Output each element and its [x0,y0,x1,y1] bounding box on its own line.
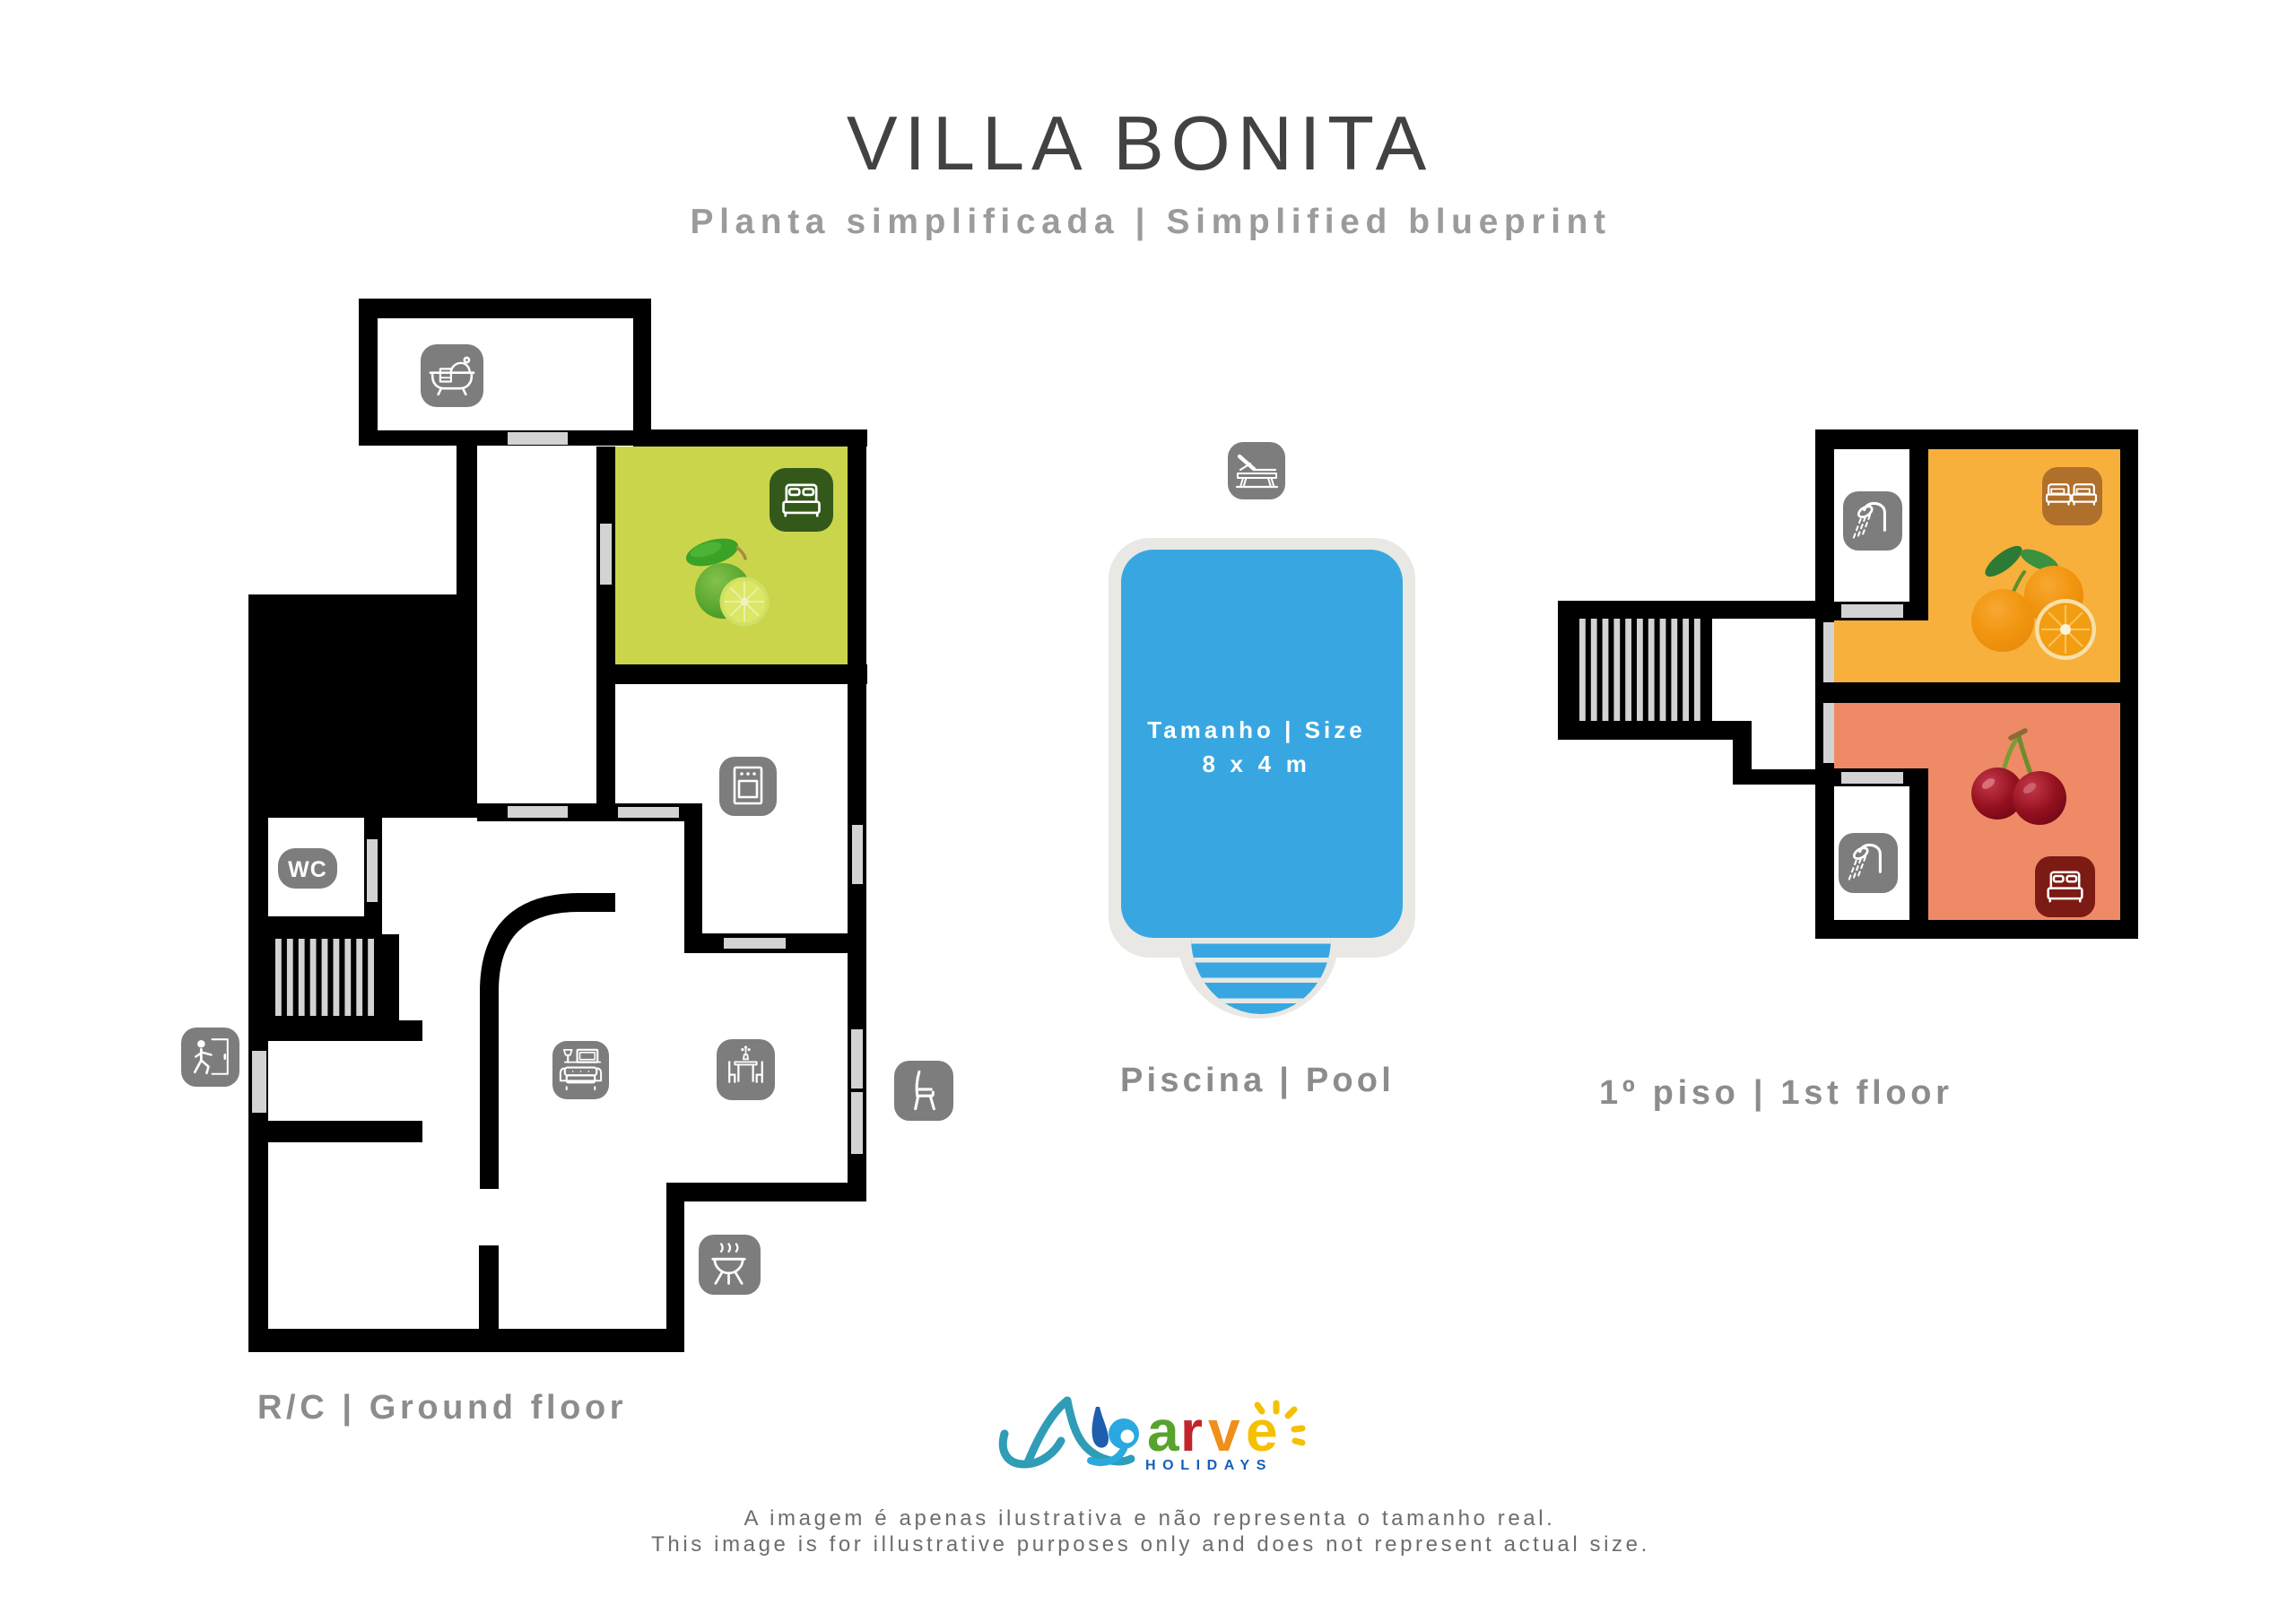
svg-text:1º piso | 1st floor: 1º piso | 1st floor [1599,1074,1953,1112]
svg-text:Tamanho | Size: Tamanho | Size [1147,716,1365,743]
svg-text:R/C | Ground floor: R/C | Ground floor [257,1389,627,1427]
svg-text:VILLA BONITA: VILLA BONITA [847,101,1433,186]
svg-text:Piscina | Pool: Piscina | Pool [1120,1062,1395,1099]
svg-text:WC: WC [288,857,327,882]
svg-text:r: r [1180,1399,1203,1463]
svg-text:HOLIDAYS: HOLIDAYS [1145,1458,1273,1473]
svg-text:a: a [1147,1399,1179,1463]
svg-text:This image is for illustrative: This image is for illustrative purposes … [651,1532,1650,1557]
svg-text:A imagem é apenas ilustrativa: A imagem é apenas ilustrativa e não repr… [744,1506,1556,1531]
svg-text:v: v [1208,1399,1240,1463]
svg-text:8 x 4 m: 8 x 4 m [1202,750,1310,777]
svg-text:Planta simplificada | Simplifi: Planta simplificada | Simplified bluepri… [690,203,1611,241]
